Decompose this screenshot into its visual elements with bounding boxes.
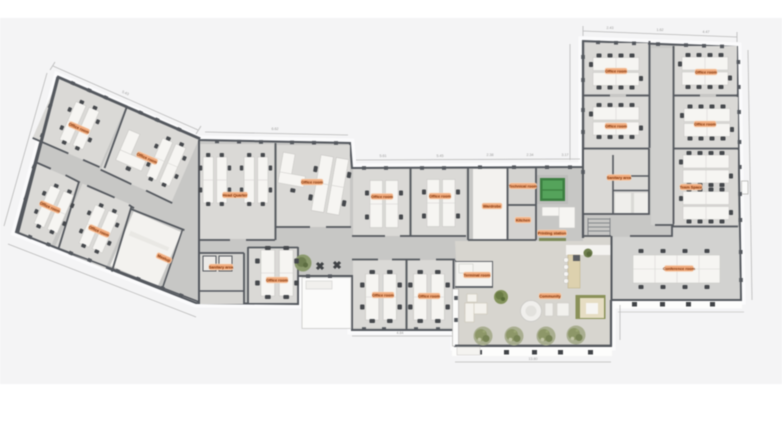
svg-text:Conference room: Conference room (663, 266, 696, 271)
svg-text:Terminal room: Terminal room (464, 273, 491, 278)
svg-text:Office room: Office room (429, 194, 451, 199)
svg-text:Printing station: Printing station (538, 231, 567, 236)
svg-text:Sanitary area: Sanitary area (607, 175, 632, 180)
svg-text:Office room: Office room (694, 122, 716, 127)
svg-text:5.61: 5.61 (380, 154, 387, 158)
svg-text:Technical room: Technical room (509, 184, 538, 189)
svg-text:Community: Community (539, 294, 561, 299)
svg-text:1.62: 1.62 (657, 28, 664, 32)
svg-text:2.34: 2.34 (527, 153, 534, 157)
svg-text:6.62: 6.62 (272, 127, 279, 131)
svg-text:Kitchen: Kitchen (516, 218, 531, 223)
svg-text:Office room: Office room (372, 293, 394, 298)
svg-text:Office room: Office room (371, 194, 393, 199)
svg-text:Office room: Office room (605, 69, 627, 74)
svg-text:Wardrobe: Wardrobe (483, 204, 502, 209)
svg-text:Office room: Office room (266, 278, 288, 283)
svg-text:Head Quarter: Head Quarter (223, 193, 248, 198)
svg-text:5.45: 5.45 (437, 154, 444, 158)
svg-text:Office room: Office room (695, 70, 717, 75)
svg-text:3.17: 3.17 (562, 153, 569, 157)
svg-text:Team Space: Team Space (680, 185, 703, 190)
svg-text:4.84: 4.84 (397, 331, 404, 335)
svg-text:Sanitary area: Sanitary area (209, 265, 234, 270)
svg-text:4.47: 4.47 (703, 30, 710, 34)
svg-text:2.38: 2.38 (487, 153, 494, 157)
svg-text:Office room: Office room (418, 294, 440, 299)
svg-text:13.80: 13.80 (529, 357, 538, 361)
svg-text:Office room: Office room (605, 124, 627, 129)
svg-text:Office room: Office room (301, 180, 323, 185)
svg-text:2.43: 2.43 (607, 26, 614, 30)
